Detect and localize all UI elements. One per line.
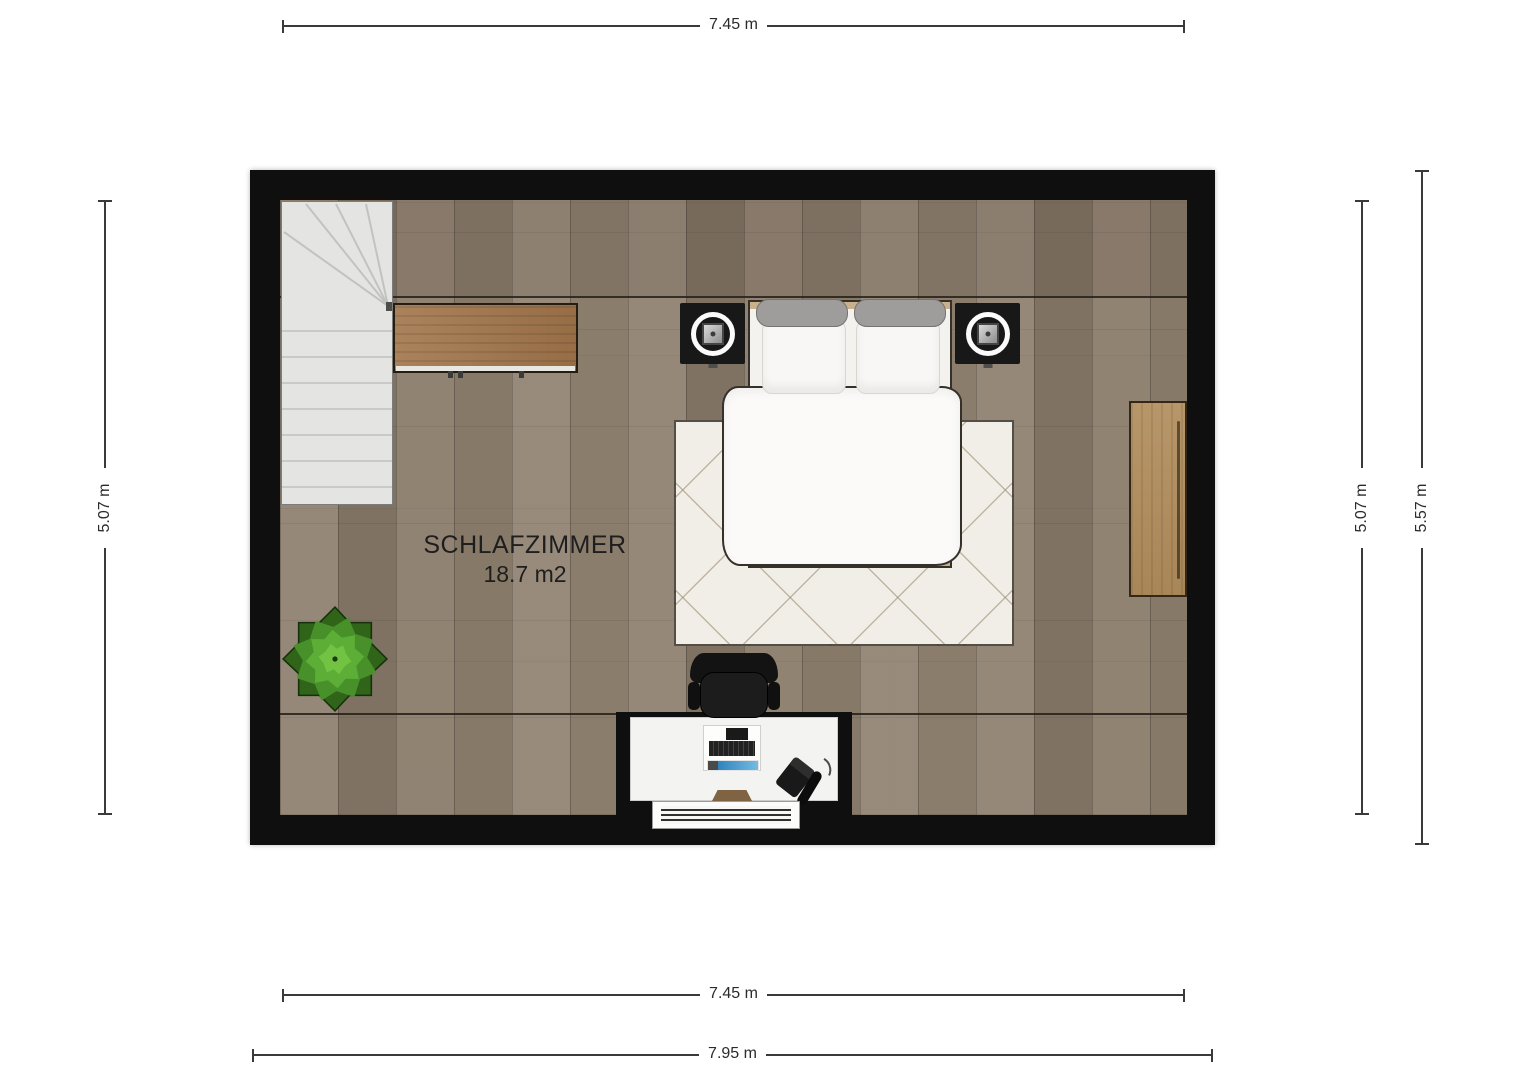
dimension-tick bbox=[1211, 1049, 1213, 1062]
dimension-label: 5.07 m bbox=[1353, 483, 1371, 532]
dimension-line bbox=[1421, 172, 1423, 468]
plant-icon bbox=[281, 605, 389, 713]
nightstand-right bbox=[955, 303, 1020, 364]
nightstand-handle bbox=[708, 364, 717, 368]
dimension-label: 7.95 m bbox=[699, 1045, 766, 1063]
dimension-line bbox=[1421, 548, 1423, 844]
bed-duvet bbox=[722, 386, 962, 566]
stair-treads bbox=[282, 306, 392, 504]
dimension-line bbox=[104, 548, 106, 814]
floor-plan-page: 7.45 m 5.07 m 5.07 m 5.57 m bbox=[0, 0, 1528, 1080]
dimension-label: 7.45 m bbox=[700, 985, 767, 1003]
dimension-line bbox=[767, 994, 1183, 996]
room-area: 18.7 m2 bbox=[393, 560, 657, 588]
dimension-tick bbox=[1183, 989, 1185, 1002]
keyboard bbox=[709, 741, 755, 756]
bed-pillow bbox=[856, 320, 940, 394]
dimension-tick bbox=[1183, 20, 1185, 33]
dimension-tick bbox=[98, 813, 112, 815]
stair-newel bbox=[386, 302, 392, 311]
sideboard-foot bbox=[458, 371, 463, 378]
sideboard-foot bbox=[448, 371, 453, 378]
sloped-ceiling-zone bbox=[280, 200, 1187, 296]
room-label: SCHLAFZIMMER 18.7 m2 bbox=[393, 530, 657, 588]
dimension-tick bbox=[1415, 843, 1429, 845]
dormer-recess bbox=[616, 712, 852, 845]
potted-plant bbox=[281, 605, 389, 713]
stair-winder-treads bbox=[282, 202, 394, 312]
office-chair-seat bbox=[700, 672, 768, 718]
screen bbox=[707, 760, 759, 771]
dimension-bottom-outer: 7.95 m bbox=[252, 1047, 1213, 1063]
room-walls: SCHLAFZIMMER 18.7 m2 bbox=[250, 170, 1215, 845]
dimension-line bbox=[254, 1054, 699, 1056]
dimension-line bbox=[284, 25, 700, 27]
computer bbox=[703, 725, 761, 771]
desk bbox=[630, 717, 838, 801]
dimension-label: 5.07 m bbox=[96, 483, 114, 532]
staircase bbox=[281, 201, 393, 505]
dimension-right-outer: 5.57 m bbox=[1412, 170, 1432, 845]
radiator-fins bbox=[661, 806, 791, 824]
dimension-label-box: 5.07 m bbox=[95, 468, 115, 548]
bed-bolster bbox=[854, 299, 946, 327]
wardrobe bbox=[1129, 401, 1187, 597]
computer-mouse bbox=[726, 728, 748, 740]
dimension-bottom-inner: 7.45 m bbox=[282, 987, 1185, 1003]
nightstand-left bbox=[680, 303, 745, 364]
lamp-center bbox=[710, 331, 715, 336]
radiator bbox=[652, 801, 800, 829]
dimension-label: 5.57 m bbox=[1413, 483, 1431, 532]
dimension-left: 5.07 m bbox=[95, 200, 115, 815]
bed-bolster bbox=[756, 299, 848, 327]
dimension-label-box: 5.57 m bbox=[1412, 468, 1432, 548]
dimension-line bbox=[767, 25, 1183, 27]
dimension-top: 7.45 m bbox=[282, 18, 1185, 34]
desk-grommet bbox=[712, 790, 752, 801]
dimension-tick bbox=[1355, 813, 1369, 815]
knee-wall-line-top bbox=[280, 296, 1187, 298]
dimension-line bbox=[284, 994, 700, 996]
office-chair-armrest bbox=[768, 682, 780, 710]
sideboard-foot bbox=[519, 371, 524, 378]
dimension-label-box: 5.07 m bbox=[1352, 468, 1372, 548]
dimension-line bbox=[1361, 202, 1363, 468]
sideboard bbox=[393, 303, 578, 373]
nightstand-handle bbox=[983, 364, 992, 368]
dimension-line bbox=[1361, 548, 1363, 814]
dimension-right-inner: 5.07 m bbox=[1352, 200, 1372, 815]
bed-pillow bbox=[762, 320, 846, 394]
lamp-center bbox=[985, 331, 990, 336]
dimension-label: 7.45 m bbox=[700, 16, 767, 34]
room-name: SCHLAFZIMMER bbox=[393, 530, 657, 560]
dimension-line bbox=[766, 1054, 1211, 1056]
dimension-line bbox=[104, 202, 106, 468]
office-chair-armrest bbox=[688, 682, 700, 710]
